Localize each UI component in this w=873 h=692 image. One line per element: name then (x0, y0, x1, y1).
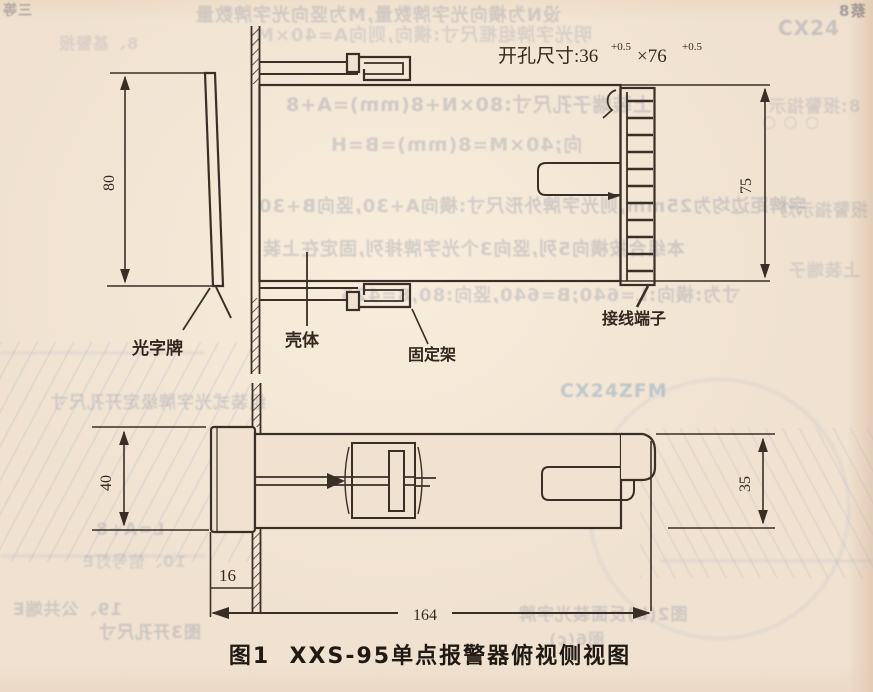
bezel-front (205, 73, 223, 286)
top-view (107, 26, 770, 374)
connector-notch (538, 163, 620, 195)
technical-drawing: 开孔尺寸:36 +0.5 ×76 +0.5 80 75 40 35 16 164… (0, 0, 873, 692)
terminal-rungs (627, 101, 653, 271)
cutout-note-2: ×76 (637, 46, 667, 67)
drawing-text: 开孔尺寸:36 +0.5 ×76 +0.5 80 75 40 35 16 164… (98, 41, 755, 669)
clamp-cross-bar (389, 451, 404, 511)
scanned-book-page: 设N为横向光字牌数量,M为竖向光字牌数量 明光字牌组框尺寸:横向,则向A=40×… (0, 0, 873, 692)
figure-caption: 图1 XXS-95单点报警器俯视侧视图 (229, 643, 631, 669)
rail-bottom (259, 288, 358, 300)
dim-80-value: 80 (101, 175, 118, 191)
label-terminal: 接线端子 (602, 309, 666, 328)
housing-body (260, 85, 621, 281)
body-end-cap (621, 434, 655, 480)
dim-75-value: 75 (738, 178, 755, 194)
body-end-step (621, 481, 634, 500)
label-housing: 壳体 (284, 330, 320, 351)
dim-164-value: 164 (413, 607, 437, 624)
cutout-height-tolerance: +0.5 (682, 41, 702, 53)
cutout-width-tolerance: +0.5 (611, 41, 631, 53)
panel-hatch-bottom (252, 298, 260, 372)
dim-16-value: 16 (219, 566, 236, 585)
panel-hatch-top (252, 26, 260, 84)
dim-35-value: 35 (737, 476, 754, 492)
connector-notch-tip (608, 192, 620, 200)
side-view (92, 383, 775, 617)
panel-hatch-upper (253, 383, 261, 427)
label-bracket: 固定架 (408, 345, 456, 364)
dim-80-extensions (107, 73, 212, 286)
leader-bracket (412, 309, 428, 344)
dim-40-value: 40 (98, 475, 115, 491)
terminal-hook (603, 90, 616, 118)
body-side (255, 434, 621, 528)
leader-terminal (637, 286, 648, 307)
label-light-plate: 光字牌 (131, 338, 183, 359)
rail-top (259, 62, 358, 74)
clamp-top-inner (364, 63, 403, 74)
bezel-perspective-edge (216, 287, 231, 318)
clamp-bottom-screw (347, 292, 359, 310)
bezel-side (211, 427, 255, 532)
panel-hatch-lower (253, 532, 261, 610)
leader-light-plate (183, 288, 210, 330)
clamp-bottom-inner (364, 290, 403, 301)
cutout-note: 开孔尺寸:36 (498, 45, 598, 67)
dim-35-extensions (656, 434, 775, 528)
clamp-top-screw (347, 54, 359, 72)
